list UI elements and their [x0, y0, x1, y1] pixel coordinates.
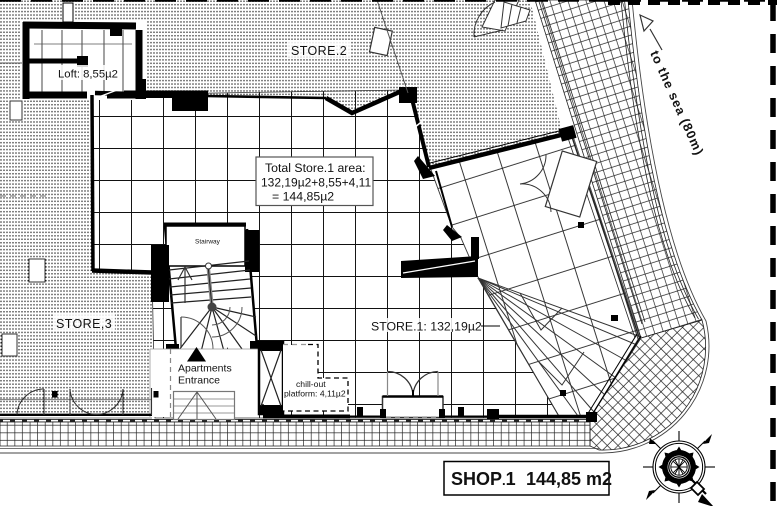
svg-text:SHOP.1: SHOP.1 [451, 469, 516, 489]
svg-text:132,19µ2+8,55+4,11: 132,19µ2+8,55+4,11 [261, 176, 371, 190]
svg-text:Stairway: Stairway [195, 239, 221, 246]
svg-text:Entrance: Entrance [178, 375, 220, 387]
svg-text:STORE,3: STORE,3 [56, 317, 112, 331]
svg-text:STORE.2: STORE.2 [291, 44, 347, 58]
svg-text:platform: 4,11µ2: platform: 4,11µ2 [284, 389, 346, 399]
svg-text:= 144,85µ2: = 144,85µ2 [272, 190, 334, 204]
svg-text:Total Store.1 area:: Total Store.1 area: [265, 161, 365, 175]
svg-text:STORE.1: 132,19µ2: STORE.1: 132,19µ2 [371, 320, 482, 334]
svg-text:144,85 m2: 144,85 m2 [526, 469, 612, 489]
svg-text:Loft: 8,55µ2: Loft: 8,55µ2 [58, 69, 118, 81]
svg-text:chill-out: chill-out [296, 379, 326, 389]
svg-text:Apartments: Apartments [178, 363, 232, 375]
